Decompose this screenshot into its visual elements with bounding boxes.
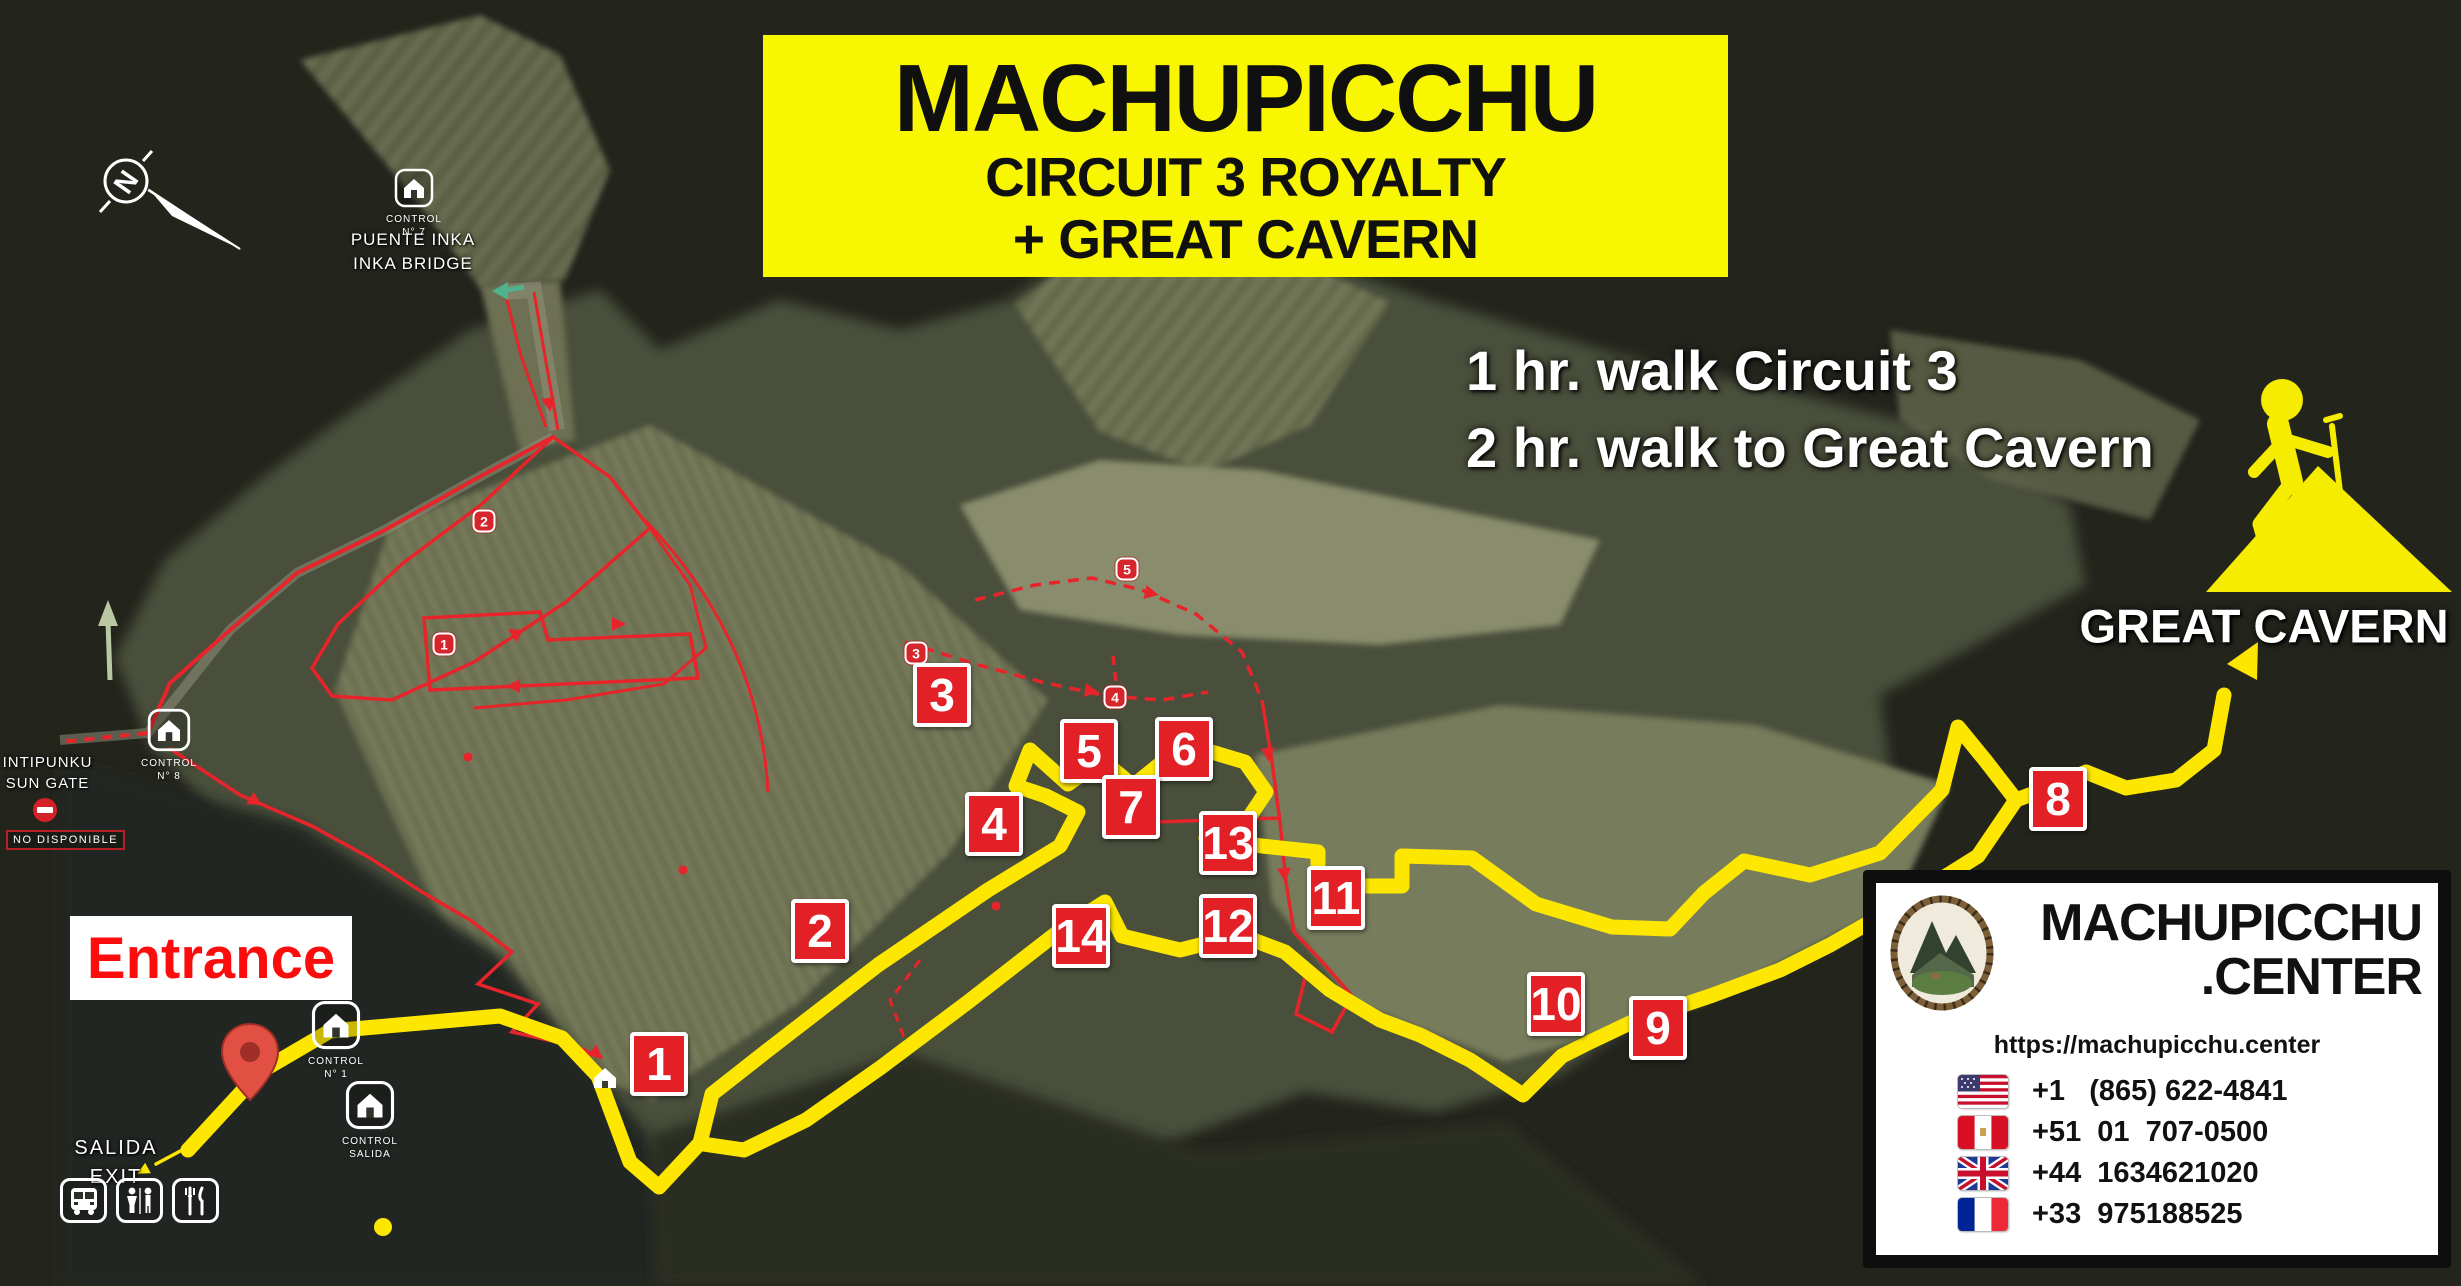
phone-list: +1 (865) 622-4841 +51 01 707-0500	[1958, 1071, 2288, 1235]
waypoint-marker-11: 11	[1307, 866, 1365, 930]
entrance-label: Entrance	[87, 925, 335, 992]
brand-line-1: MACHUPICCHU	[1986, 897, 2422, 949]
control-house-icon	[394, 168, 434, 208]
waypoint-marker-7: 7	[1102, 775, 1160, 839]
usa-flag-icon	[1958, 1075, 2008, 1108]
control-house-icon	[147, 708, 191, 752]
waypoint-marker-3: 3	[913, 663, 971, 727]
brand-line-2: .CENTER	[1986, 951, 2422, 1003]
machu-picchu-circuit-map: N MACHUPICCHU CIRCUIT 3	[0, 0, 2461, 1286]
contact-panel: MACHUPICCHU .CENTER https://machupicchu.…	[1863, 870, 2451, 1268]
control-n1: CONTROLN° 1	[308, 1000, 364, 1081]
phone-number-usa[interactable]: +1 (865) 622-4841	[2032, 1075, 2288, 1108]
waypoint-marker-14: 14	[1052, 904, 1110, 968]
phone-row-uk: +44 1634621020	[1958, 1153, 2288, 1194]
restaurant-icon	[172, 1178, 219, 1223]
great-cavern-label: GREAT CAVERN	[2079, 599, 2448, 654]
entrance-label-box: Entrance	[70, 916, 352, 1000]
waypoint-marker-2: 2	[791, 899, 849, 963]
machupicchu-center-logo	[1890, 895, 1994, 1011]
bus-icon	[60, 1178, 107, 1223]
control-n7: CONTROLN° 7	[386, 168, 442, 239]
circuit-badge-3: 3	[905, 642, 928, 665]
map-title: MACHUPICCHU	[763, 51, 1728, 147]
control-house-icon	[345, 1080, 395, 1130]
peru-flag-icon	[1958, 1116, 2008, 1149]
waypoint-marker-12: 12	[1199, 894, 1257, 958]
phone-number-france[interactable]: +33 975188525	[2032, 1198, 2242, 1231]
phone-row-peru: +51 01 707-0500	[1958, 1112, 2288, 1153]
waypoint-marker-5: 5	[1060, 719, 1118, 783]
intipunku-label: INTIPUNKU SUN GATE	[0, 752, 95, 794]
phone-row-france: +33 975188525	[1958, 1194, 2288, 1235]
waypoint-marker-1: 1	[630, 1032, 688, 1096]
waypoint-marker-13: 13	[1199, 811, 1257, 875]
waypoint-marker-8: 8	[2029, 767, 2087, 831]
walk-info: 1 hr. walk Circuit 3 2 hr. walk to Great…	[1466, 332, 2154, 487]
circuit-badge-2: 2	[473, 510, 496, 533]
facility-icons	[60, 1178, 219, 1223]
walk-info-line-1: 1 hr. walk Circuit 3	[1466, 332, 2154, 409]
compass-icon: N	[100, 151, 242, 250]
uk-flag-icon	[1958, 1157, 2008, 1190]
phone-number-uk[interactable]: +44 1634621020	[2032, 1157, 2259, 1190]
no-disponible-badge: NO DISPONIBLE	[6, 830, 125, 850]
waypoint-marker-4: 4	[965, 792, 1023, 856]
circuit-badge-5: 5	[1116, 558, 1139, 581]
restrooms-icon	[116, 1178, 163, 1223]
brand-block: MACHUPICCHU .CENTER	[1986, 897, 2422, 1003]
control-n8: CONTROLN° 8	[141, 708, 197, 783]
phone-number-peru[interactable]: +51 01 707-0500	[2032, 1116, 2268, 1149]
waypoint-marker-6: 6	[1155, 717, 1213, 781]
svg-text:N: N	[108, 165, 145, 199]
france-flag-icon	[1958, 1198, 2008, 1231]
control-house-icon	[311, 1000, 361, 1050]
map-subtitle-1: CIRCUIT 3 ROYALTY	[763, 147, 1728, 209]
circuit-badge-1: 1	[433, 633, 456, 656]
waypoint-marker-10: 10	[1527, 972, 1585, 1036]
hiker-icon	[2206, 379, 2452, 592]
title-banner: MACHUPICCHU CIRCUIT 3 ROYALTY + GREAT CA…	[763, 35, 1728, 277]
phone-row-usa: +1 (865) 622-4841	[1958, 1071, 2288, 1112]
map-subtitle-2: + GREAT CAVERN	[763, 209, 1728, 271]
waypoint-marker-9: 9	[1629, 996, 1687, 1060]
control-salida: CONTROLSALIDA	[341, 1080, 399, 1161]
circuit-badge-4: 4	[1104, 686, 1127, 709]
website-url[interactable]: https://machupicchu.center	[1876, 1031, 2438, 1060]
yellow-dot	[374, 1218, 392, 1236]
walk-info-line-2: 2 hr. walk to Great Cavern	[1466, 409, 2154, 486]
no-entry-icon	[33, 798, 57, 822]
